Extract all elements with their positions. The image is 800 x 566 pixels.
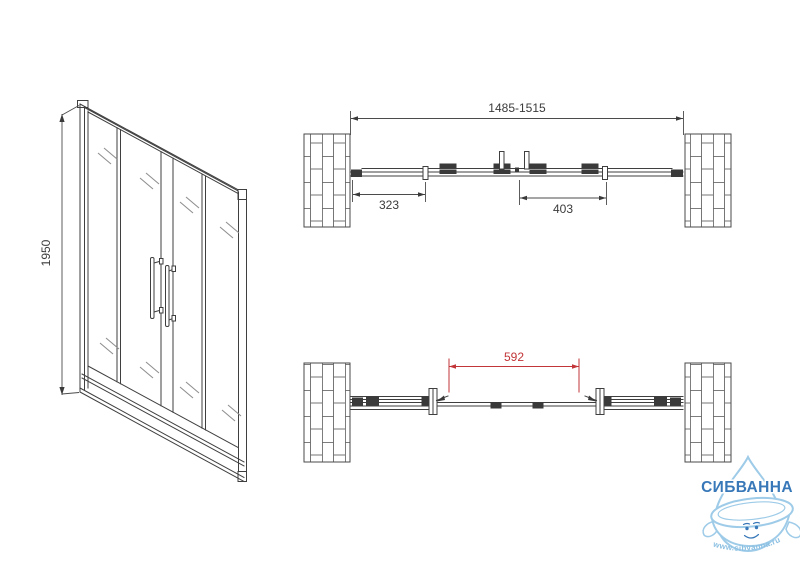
brand-logo: СИБВАННА www.sibvanna.ru: [701, 457, 800, 553]
handle-top-view-left: [500, 152, 505, 170]
wall-hatch-right: [685, 134, 731, 227]
door-panel-label: 403: [553, 202, 573, 216]
center-stop: [515, 168, 519, 173]
plan-view-closed: 1485-1515 323 403: [304, 101, 731, 227]
handle-top-view-right: [525, 152, 530, 170]
height-dimension-label: 1950: [39, 239, 53, 266]
technical-drawing: 1950: [0, 0, 800, 566]
panel-bracket-left: [423, 167, 428, 180]
wall-hatch-left-open: [304, 363, 350, 462]
plan-view-open: 592: [304, 350, 731, 462]
left-panel-label: 323: [379, 198, 399, 212]
left-panel-dimension: 323: [353, 180, 426, 212]
wall-hatch-left: [304, 134, 350, 227]
wall-profile-right: [671, 170, 683, 178]
brand-name: СИБВАННА: [701, 479, 793, 496]
opening-width-dimension: 592: [449, 350, 579, 393]
bathtub-icon: [703, 494, 800, 546]
wall-hatch-right-open: [685, 363, 731, 462]
track-stop-right: [533, 402, 544, 409]
opening-width-label: 592: [504, 350, 524, 364]
door-track-closed: [351, 152, 683, 180]
door-track-open: [351, 389, 683, 415]
wall-profile-left: [351, 170, 362, 178]
front-view: 1950: [39, 101, 247, 482]
overall-width-dimension: 1485-1515: [351, 101, 684, 135]
panel-bracket-right: [603, 167, 608, 180]
door-panel-dimension: 403: [520, 180, 607, 216]
door-handles: [151, 258, 176, 327]
overall-width-label: 1485-1515: [488, 101, 546, 115]
track-stop-left: [491, 402, 502, 409]
height-dimension: 1950: [39, 106, 79, 396]
